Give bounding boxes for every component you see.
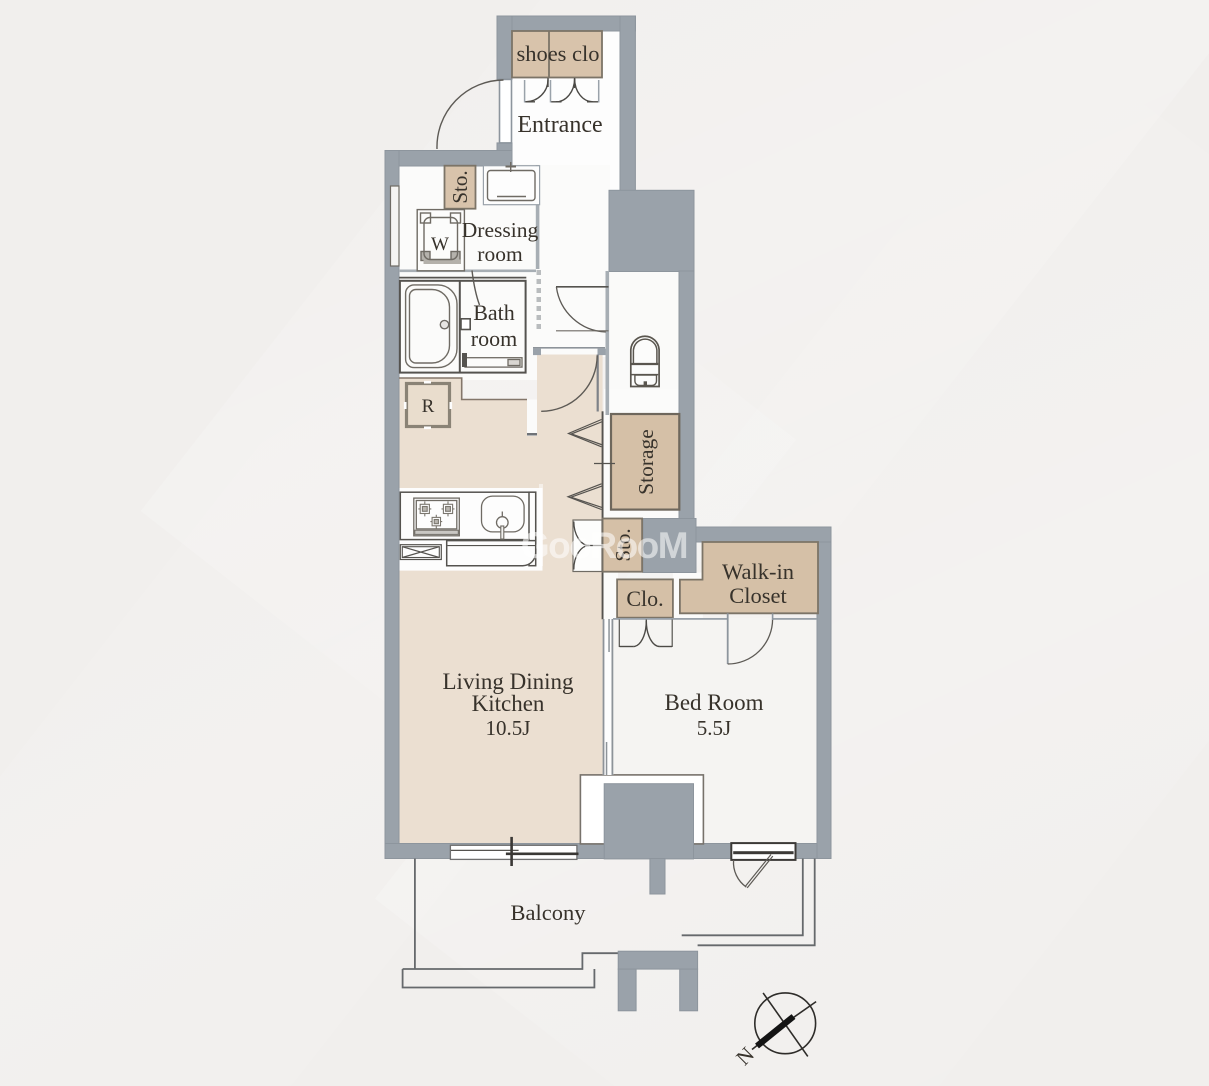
svg-text:GooRooM: GooRooM — [521, 525, 687, 566]
svg-text:R: R — [422, 396, 435, 417]
svg-text:room: room — [477, 242, 523, 266]
svg-text:Bed Room: Bed Room — [664, 690, 763, 715]
svg-text:room: room — [471, 326, 517, 351]
svg-text:Entrance: Entrance — [517, 112, 602, 138]
svg-text:Clo.: Clo. — [626, 586, 663, 611]
svg-text:Kitchen: Kitchen — [472, 691, 545, 716]
svg-text:shoes clo: shoes clo — [516, 41, 599, 66]
svg-text:Sto.: Sto. — [448, 170, 472, 203]
svg-text:Closet: Closet — [729, 583, 787, 608]
svg-text:Balcony: Balcony — [511, 900, 587, 925]
svg-text:5.5J: 5.5J — [697, 716, 731, 740]
svg-text:10.5J: 10.5J — [486, 716, 531, 740]
svg-text:Dressing: Dressing — [462, 218, 539, 242]
svg-text:W: W — [431, 234, 449, 255]
svg-text:Walk-in: Walk-in — [722, 559, 794, 584]
svg-text:Bath: Bath — [473, 300, 515, 325]
svg-text:Storage: Storage — [634, 429, 658, 495]
